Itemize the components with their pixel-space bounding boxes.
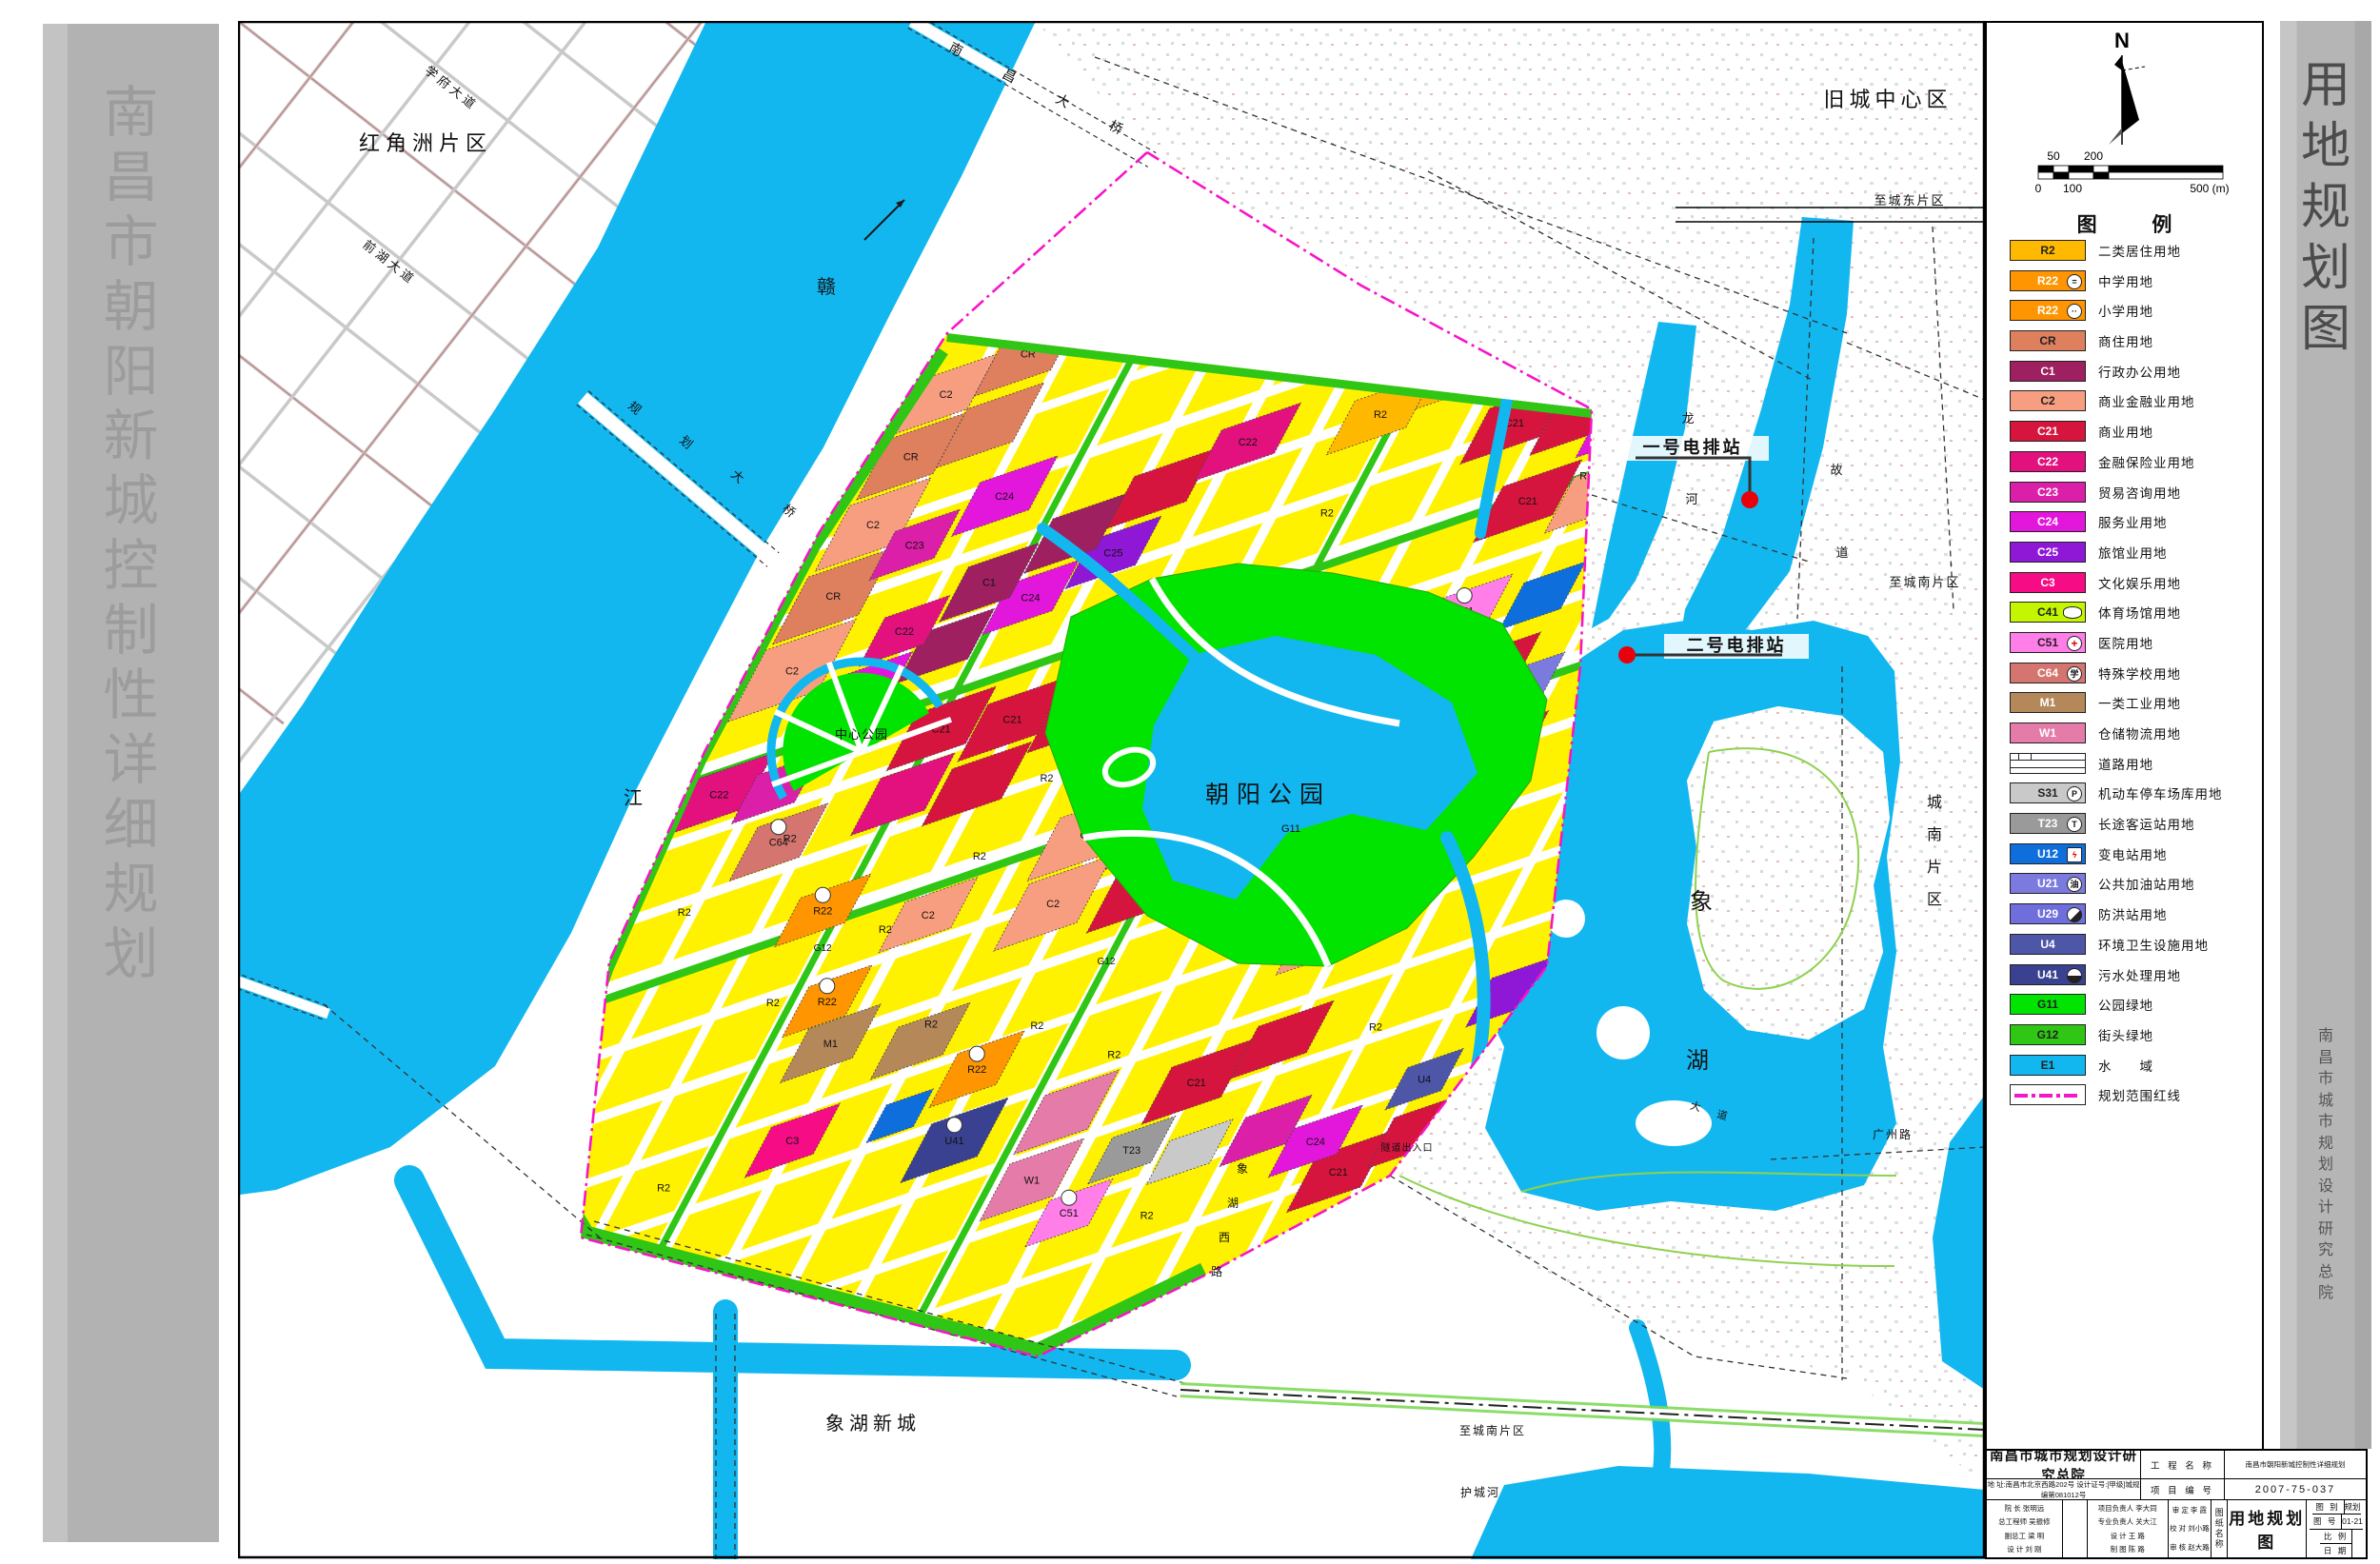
svg-text:R2: R2	[924, 1020, 938, 1031]
legend-item: U41污水处理用地	[2010, 964, 2257, 985]
institute-vertical-title: 南昌市城市规划设计研究总院	[2280, 1026, 2371, 1305]
svg-text:G11: G11	[1281, 823, 1300, 835]
legend-item: R22=中学用地	[2010, 270, 2257, 291]
svg-text:至城东片区: 至城东片区	[1874, 193, 1945, 208]
legend-item-label: 长途客运站用地	[2098, 814, 2195, 833]
north-arrow-icon: N	[2082, 29, 2168, 154]
legend-panel: N 502000100500 (m) 图 例 R2二类居住用地R22=中学用地R…	[1985, 21, 2264, 1559]
legend-item-label: 金融保险业用地	[2098, 452, 2195, 471]
svg-text:象: 象	[1690, 889, 1713, 915]
legend-item-label: 医院用地	[2098, 633, 2153, 652]
legend-item: CR商住用地	[2010, 330, 2257, 351]
svg-text:故: 故	[1830, 463, 1842, 477]
legend-item: C22金融保险业用地	[2010, 451, 2257, 472]
svg-text:河: 河	[1685, 492, 1697, 506]
legend-item-label: 水 域	[2098, 1056, 2153, 1075]
svg-text:C21: C21	[1518, 496, 1537, 507]
sheet-name-label: 图纸名称	[2211, 1500, 2228, 1557]
svg-text:路: 路	[1211, 1264, 1222, 1278]
legend-swatch: U21油	[2010, 873, 2086, 894]
legend-item: 道路用地	[2010, 753, 2257, 774]
legend-swatch: U4	[2010, 934, 2086, 955]
legend-item: C2商业金融业用地	[2010, 390, 2257, 411]
svg-text:M1: M1	[823, 1039, 838, 1050]
svg-text:U4: U4	[1418, 1075, 1431, 1086]
document-vertical-title: 南昌市朝阳新城控制性详细规划	[43, 24, 219, 987]
legend-item: C1行政办公用地	[2010, 361, 2257, 382]
legend-swatch: E1	[2010, 1055, 2086, 1076]
legend-item: R22··小学用地	[2010, 300, 2257, 321]
sheet-meta: 图 别规划图 号01-21比 例日 期	[2307, 1500, 2366, 1557]
svg-text:R2: R2	[1140, 1211, 1154, 1222]
legend-swatch: R2	[2010, 240, 2086, 261]
legend-swatch: C25	[2010, 542, 2086, 563]
legend-swatch: C23	[2010, 482, 2086, 503]
legend-item: W1仓储物流用地	[2010, 723, 2257, 743]
legend-item-label: 变电站用地	[2098, 844, 2168, 863]
svg-text:西: 西	[1219, 1231, 1230, 1244]
legend-item-label: 二类居住用地	[2098, 241, 2181, 260]
svg-text:象湖新城: 象湖新城	[825, 1413, 921, 1435]
sheet-vertical-title: 用地规划图	[2280, 21, 2371, 360]
legend-item: R2二类居住用地	[2010, 240, 2257, 261]
svg-text:CR: CR	[903, 452, 919, 464]
legend-item-label: 仓储物流用地	[2098, 723, 2181, 742]
svg-text:C21: C21	[1187, 1078, 1206, 1089]
svg-text:赣: 赣	[817, 276, 836, 298]
legend-swatch: C24	[2010, 511, 2086, 532]
svg-text:江: 江	[624, 787, 643, 809]
svg-text:朝阳公园: 朝阳公园	[1205, 782, 1331, 808]
svg-text:湖: 湖	[1227, 1196, 1239, 1210]
legend-swatch: C2	[2010, 390, 2086, 411]
legend-item-icon: T	[2067, 817, 2082, 832]
svg-text:R22: R22	[818, 997, 837, 1008]
legend-item: T23T长途客运站用地	[2010, 813, 2257, 834]
legend-item-label: 机动车停车场库用地	[2098, 783, 2223, 802]
svg-text:R2: R2	[783, 833, 797, 844]
legend-item-label: 中学用地	[2098, 271, 2153, 290]
legend-swatch-road	[2010, 753, 2086, 774]
legend-item-label: 街头绿地	[2098, 1025, 2153, 1044]
svg-text:C1: C1	[982, 578, 996, 589]
legend-swatch: S31P	[2010, 782, 2086, 803]
legend-item: U12ϟ变电站用地	[2010, 843, 2257, 864]
svg-text:至城南片区: 至城南片区	[1889, 575, 1960, 589]
svg-text:100: 100	[2063, 182, 2082, 195]
land-use-map[interactable]: C2CRC2CRC2CRC24C24C25C22C1C22C21C21C2C41…	[238, 21, 1985, 1559]
legend-swatch: T23T	[2010, 813, 2086, 834]
svg-text:U41: U41	[944, 1136, 963, 1147]
project-name-label: 工 程 名 称	[2141, 1451, 2225, 1478]
legend-item: G11公园绿地	[2010, 994, 2257, 1015]
staff-column-1: 院 长 张明远总工程师 吴振修副总工 梁 明设 计 刘 刚	[1987, 1500, 2063, 1557]
svg-text:R2: R2	[1040, 773, 1053, 784]
legend-item: G12街头绿地	[2010, 1024, 2257, 1045]
legend-swatch: R22··	[2010, 300, 2086, 321]
legend-swatch: C51+	[2010, 632, 2086, 653]
scale-bar: 502000100500 (m)	[2033, 148, 2232, 204]
legend-item-icon: 学	[2067, 666, 2082, 682]
legend-item-label: 一类工业用地	[2098, 693, 2181, 712]
svg-text:C24: C24	[1306, 1137, 1325, 1148]
institute-name: 南昌市城市规划设计研究总院	[1987, 1451, 2141, 1478]
svg-text:红角洲片区: 红角洲片区	[359, 131, 492, 155]
legend-item: S31P机动车停车场库用地	[2010, 782, 2257, 803]
legend-item-icon: =	[2067, 274, 2082, 289]
legend-swatch: C3	[2010, 572, 2086, 593]
legend-item-icon: 油	[2067, 877, 2082, 892]
svg-text:C22: C22	[1239, 437, 1258, 448]
svg-text:片: 片	[1927, 859, 1942, 876]
project-number-label: 项 目 编 号	[2141, 1479, 2225, 1499]
svg-text:C21: C21	[1329, 1167, 1348, 1178]
legend-item: U29防洪站用地	[2010, 903, 2257, 924]
svg-text:护城河: 护城河	[1460, 1486, 1500, 1499]
legend-item: C23贸易咨询用地	[2010, 482, 2257, 503]
svg-text:G12: G12	[1098, 957, 1116, 967]
legend-swatch: U29	[2010, 903, 2086, 924]
svg-text:N: N	[2114, 29, 2130, 52]
legend-item: C41体育场馆用地	[2010, 602, 2257, 623]
svg-text:R2: R2	[766, 998, 780, 1009]
legend-item: M1一类工业用地	[2010, 692, 2257, 713]
staff-column-3: 审 定 李 霞校 对 刘小路审 核 赵大路	[2169, 1500, 2211, 1557]
svg-text:C3: C3	[785, 1136, 799, 1147]
legend-title: 图 例	[1987, 209, 2262, 238]
legend-item-label: 商住用地	[2098, 331, 2153, 350]
svg-text:CR: CR	[825, 591, 841, 603]
legend-swatch: G12	[2010, 1024, 2086, 1045]
svg-text:中心公园: 中心公园	[835, 727, 888, 742]
svg-text:南: 南	[1927, 826, 1942, 843]
legend-item-label: 商业用地	[2098, 422, 2153, 441]
svg-text:R2: R2	[657, 1183, 670, 1195]
stamp-cell	[2063, 1500, 2088, 1557]
legend-item: 规划范围红线	[2010, 1084, 2257, 1105]
legend-item: C21商业用地	[2010, 421, 2257, 442]
svg-text:R2: R2	[1030, 1020, 1043, 1032]
svg-text:二号电排站: 二号电排站	[1687, 635, 1787, 655]
svg-text:城: 城	[1927, 794, 1942, 811]
svg-text:200: 200	[2084, 149, 2103, 163]
legend-swatch: C22	[2010, 451, 2086, 472]
svg-text:W1: W1	[1024, 1175, 1041, 1186]
svg-text:R2: R2	[973, 851, 986, 862]
map-canvas[interactable]: C2CRC2CRC2CRC24C24C25C22C1C22C21C21C2C41…	[238, 21, 1985, 1559]
svg-text:R22: R22	[813, 905, 832, 917]
svg-text:50: 50	[2047, 149, 2060, 163]
legend-item-label: 小学用地	[2098, 301, 2153, 320]
svg-text:C22: C22	[895, 626, 914, 638]
svg-text:R2: R2	[1374, 409, 1387, 421]
svg-text:C23: C23	[905, 540, 924, 551]
svg-text:象: 象	[1237, 1162, 1248, 1176]
legend-item-label: 公园绿地	[2098, 995, 2153, 1014]
svg-text:C51: C51	[1060, 1208, 1079, 1219]
legend-item-label: 规划范围红线	[2098, 1085, 2181, 1104]
svg-text:C24: C24	[1021, 593, 1040, 604]
legend-item: E1水 域	[2010, 1055, 2257, 1076]
legend-item-label: 行政办公用地	[2098, 362, 2181, 381]
svg-text:道: 道	[1835, 545, 1848, 560]
legend-item: C24服务业用地	[2010, 511, 2257, 532]
legend-item-label: 环境卫生设施用地	[2098, 935, 2209, 954]
svg-text:C21: C21	[1002, 715, 1021, 726]
legend-item-icon: +	[2067, 636, 2082, 651]
legend-item: U4环境卫生设施用地	[2010, 934, 2257, 955]
legend-swatch: C41	[2010, 602, 2086, 623]
titleblock: 南昌市城市规划设计研究总院工 程 名 称南昌市朝阳新城控制性详细规划地 址:南昌…	[1985, 1449, 2368, 1559]
svg-text:一号电排站: 一号电排站	[1643, 437, 1743, 457]
legend-items: R2二类居住用地R22=中学用地R22··小学用地CR商住用地C1行政办公用地C…	[2010, 240, 2257, 1115]
svg-text:R2: R2	[1369, 1021, 1382, 1033]
legend-item-label: 服务业用地	[2098, 512, 2168, 531]
legend-item-label: 旅馆业用地	[2098, 543, 2168, 562]
legend-item-label: 体育场馆用地	[2098, 603, 2181, 622]
legend-swatch: U12ϟ	[2010, 843, 2086, 864]
svg-text:湖: 湖	[1686, 1048, 1709, 1074]
svg-text:R2: R2	[1320, 508, 1334, 520]
svg-text:C24: C24	[995, 491, 1014, 503]
legend-item-label: 商业金融业用地	[2098, 391, 2195, 410]
legend-item-label: 文化娱乐用地	[2098, 573, 2181, 592]
legend-swatch: C1	[2010, 361, 2086, 382]
project-name-value: 南昌市朝阳新城控制性详细规划	[2225, 1451, 2366, 1478]
planning-sheet: 南昌市朝阳新城控制性详细规划 C2CRC2CRC2CRC24C24C25C22C…	[0, 0, 2380, 1564]
svg-text:C2: C2	[785, 665, 799, 677]
legend-swatch: M1	[2010, 692, 2086, 713]
svg-text:R2: R2	[1107, 1049, 1121, 1060]
svg-text:C2: C2	[922, 910, 935, 921]
legend-item: C3文化娱乐用地	[2010, 572, 2257, 593]
legend-item-label: 道路用地	[2098, 754, 2153, 773]
svg-text:隧道出入口: 隧道出入口	[1381, 1141, 1434, 1154]
legend-item-icon: ϟ	[2067, 847, 2082, 862]
legend-swatch: CR	[2010, 330, 2086, 351]
staff-column-2: 项目负责人 李大同专业负责人 关大江设 计 王 路制 图 陈 路	[2088, 1500, 2169, 1557]
project-number-value: 2007-75-037	[2225, 1479, 2366, 1499]
legend-swatch: R22=	[2010, 270, 2086, 291]
legend-item-label: 贸易咨询用地	[2098, 483, 2181, 502]
legend-swatch: C21	[2010, 421, 2086, 442]
legend-swatch: C64学	[2010, 663, 2086, 683]
svg-text:R22: R22	[967, 1064, 986, 1076]
sheet-name-value: 用地规划图	[2228, 1500, 2307, 1557]
svg-text:0: 0	[2035, 182, 2042, 195]
legend-item: C51+医院用地	[2010, 632, 2257, 653]
legend-item-icon	[2067, 968, 2082, 983]
svg-text:C25: C25	[1103, 548, 1122, 560]
legend-swatch-boundary	[2010, 1084, 2086, 1105]
legend-item-label: 污水处理用地	[2098, 965, 2181, 984]
legend-swatch: G11	[2010, 994, 2086, 1015]
svg-text:C2: C2	[866, 520, 880, 531]
legend-item: C25旅馆业用地	[2010, 542, 2257, 563]
svg-text:R2: R2	[678, 907, 691, 919]
svg-text:龙: 龙	[1681, 411, 1694, 426]
legend-item: U21油公共加油站用地	[2010, 873, 2257, 894]
legend-swatch: W1	[2010, 723, 2086, 743]
legend-item-icon: P	[2067, 786, 2082, 802]
svg-text:C22: C22	[709, 789, 728, 801]
legend-item-label: 公共加油站用地	[2098, 874, 2195, 893]
svg-text:500 (m): 500 (m)	[2190, 182, 2229, 195]
legend-item-icon	[2067, 907, 2082, 922]
legend-item-label: 特殊学校用地	[2098, 663, 2181, 683]
legend-item: C64学特殊学校用地	[2010, 663, 2257, 683]
svg-text:C2: C2	[1046, 899, 1060, 910]
institute-address: 地 址:南昌市北京西路202号 设计证号:[甲级]城规编第081012号	[1987, 1479, 2141, 1499]
svg-text:G12: G12	[814, 943, 832, 954]
legend-swatch: U41	[2010, 964, 2086, 985]
legend-item-icon: ··	[2067, 304, 2082, 319]
svg-text:R2: R2	[879, 924, 892, 936]
svg-text:区: 区	[1927, 892, 1942, 908]
svg-text:旧城中心区: 旧城中心区	[1823, 88, 1952, 111]
legend-item-icon	[2063, 606, 2082, 619]
svg-text:T23: T23	[1122, 1145, 1140, 1157]
svg-text:广州路: 广州路	[1873, 1127, 1913, 1141]
legend-item-label: 防洪站用地	[2098, 904, 2168, 923]
left-sidebar: 南昌市朝阳新城控制性详细规划	[43, 24, 219, 1542]
svg-text:C2: C2	[940, 389, 953, 401]
svg-text:至城南片区: 至城南片区	[1459, 1423, 1526, 1437]
right-strip: 用地规划图 南昌市城市规划设计研究总院	[2280, 21, 2371, 1449]
